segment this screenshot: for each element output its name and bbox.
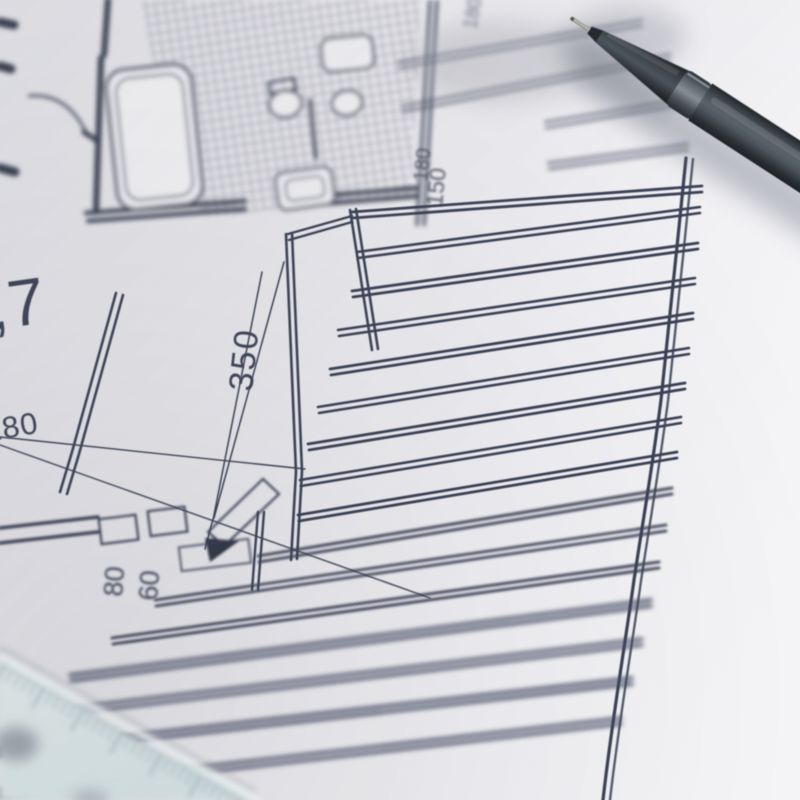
- vignette: [0, 0, 800, 800]
- blueprint-photo: ,7 350 180 80 60 180 150 180: [0, 0, 800, 800]
- photo-of-floor-plan: ,7 350 180 80 60 180 150 180: [0, 0, 800, 800]
